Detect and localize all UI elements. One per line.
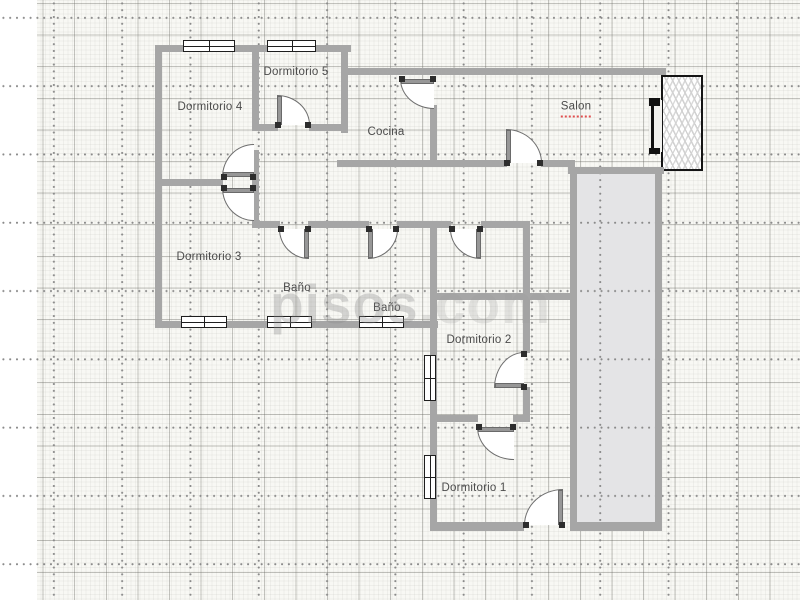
room-label-dormitorio-3: Dormitorio 3 <box>176 251 241 263</box>
window-symbol <box>181 316 227 328</box>
room-label-dormitorio-2: Dormitorio 2 <box>446 334 511 346</box>
wall <box>513 415 530 422</box>
floorplan-page: Dormitorio 4Dormitorio 5CocinaSalonDormi… <box>0 0 800 600</box>
wall <box>570 522 662 531</box>
window-jamb <box>649 148 660 154</box>
wall <box>345 68 666 75</box>
door-jamb <box>510 424 516 430</box>
door-jamb <box>250 174 256 180</box>
wall <box>568 167 664 174</box>
window-symbol <box>183 40 235 52</box>
wall <box>523 223 530 353</box>
wall <box>252 221 280 228</box>
door-jamb <box>504 160 510 166</box>
door-leaf <box>478 427 514 432</box>
door-leaf <box>495 383 524 388</box>
wall <box>252 45 259 131</box>
door-jamb <box>477 226 483 232</box>
page-margin <box>0 0 37 600</box>
door-jamb <box>393 226 399 232</box>
door-jamb <box>275 122 281 128</box>
door-leaf <box>558 490 563 525</box>
wall <box>430 105 437 167</box>
window-symbol <box>267 316 312 328</box>
room-label-dormitorio-4: Dormitorio 4 <box>177 101 242 113</box>
wall <box>397 221 451 228</box>
window-symbol <box>424 355 436 401</box>
wall <box>308 221 369 228</box>
door-jamb <box>521 351 527 357</box>
wall <box>655 174 662 530</box>
wall <box>541 160 575 167</box>
door-leaf <box>277 96 282 125</box>
wall <box>341 45 348 133</box>
wall <box>155 45 162 328</box>
patio-area <box>577 174 655 522</box>
door-jamb <box>221 185 227 191</box>
wall <box>430 293 572 300</box>
door-jamb <box>250 185 256 191</box>
door-jamb <box>278 226 284 232</box>
door-jamb <box>430 76 436 82</box>
radiator-symbol <box>661 75 703 171</box>
window-jamb <box>649 98 660 104</box>
door-leaf <box>476 229 481 258</box>
wall <box>570 174 577 530</box>
window-symbol <box>424 455 436 499</box>
door-jamb <box>559 522 565 528</box>
door-jamb <box>399 76 405 82</box>
window-symbol <box>267 40 316 52</box>
room-label-ba-o: Baño <box>373 302 401 314</box>
wall <box>430 522 524 531</box>
room-label-cocina: Cocina <box>368 126 405 138</box>
door-jamb <box>221 174 227 180</box>
door-jamb <box>305 122 311 128</box>
room-label-ba-o: Baño <box>283 282 311 294</box>
room-label-dormitorio-5: Dormitorio 5 <box>263 66 328 78</box>
door-jamb <box>305 226 311 232</box>
door-leaf <box>304 229 309 258</box>
door-jamb <box>449 226 455 232</box>
door-jamb <box>537 160 543 166</box>
spellcheck-squiggle <box>561 114 591 118</box>
room-label-dormitorio-1: Dormitorio 1 <box>441 482 506 494</box>
door-jamb <box>521 384 527 390</box>
window-symbol <box>649 100 662 152</box>
door-leaf <box>506 130 511 163</box>
window-symbol <box>359 316 404 328</box>
wall <box>430 415 478 422</box>
door-jamb <box>523 522 529 528</box>
wall <box>155 179 223 186</box>
wall <box>337 160 507 167</box>
door-leaf <box>368 229 373 258</box>
room-label-salon: Salon <box>561 101 591 118</box>
door-jamb <box>366 226 372 232</box>
door-jamb <box>476 424 482 430</box>
